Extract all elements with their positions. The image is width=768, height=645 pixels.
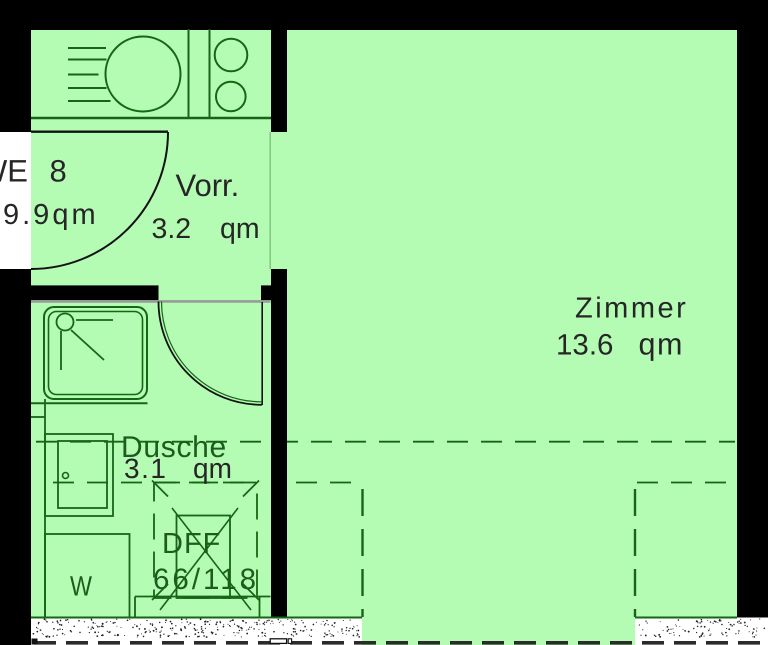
svg-text:qm: qm [193, 453, 232, 484]
svg-text:W: W [70, 571, 92, 602]
svg-text:3.1: 3.1 [124, 453, 167, 484]
svg-text:8: 8 [50, 154, 67, 189]
svg-text:Vorr.: Vorr. [176, 168, 240, 203]
svg-text:WE: WE [0, 154, 28, 189]
svg-text:3.2: 3.2 [152, 213, 192, 245]
svg-text:qm: qm [220, 213, 260, 245]
svg-text:Zimmer: Zimmer [575, 293, 688, 325]
svg-text:66/118: 66/118 [153, 563, 259, 596]
svg-text:DFF: DFF [162, 528, 221, 560]
svg-text:9.9qm: 9.9qm [3, 199, 99, 231]
svg-text:13.6: 13.6 [556, 329, 613, 362]
svg-text:qm: qm [639, 328, 684, 362]
